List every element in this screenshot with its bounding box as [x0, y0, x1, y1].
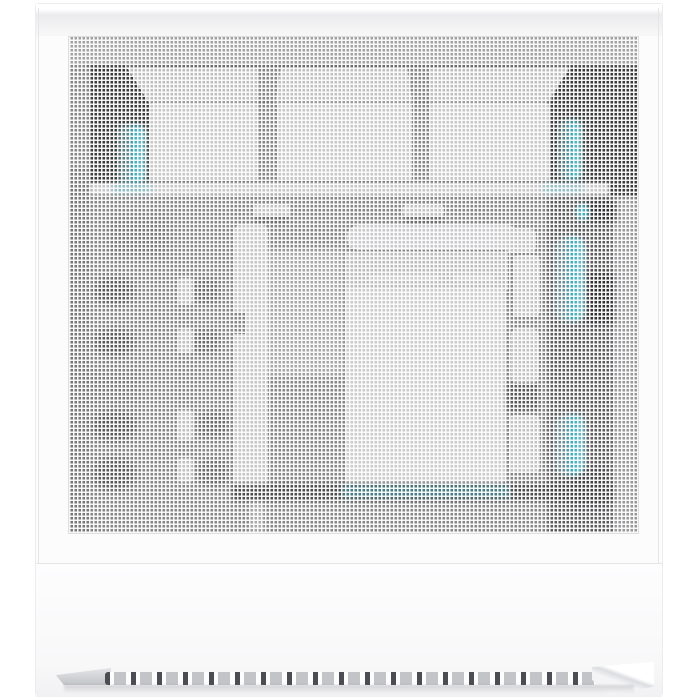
radiator-highlight — [454, 275, 494, 281]
bottom-vent-strip — [105, 672, 597, 685]
right-bracket-gap-shadow — [506, 383, 539, 411]
central-white-block — [345, 289, 506, 483]
right-bracket-tab — [511, 329, 539, 383]
rgb-cable-right-middle — [555, 237, 585, 321]
cable-shadow — [193, 330, 219, 354]
vent-end-cap-left — [56, 667, 111, 685]
fan-bracket-edge — [87, 64, 620, 67]
lower-teal-glow — [342, 485, 510, 498]
cable-shadow — [193, 279, 219, 303]
pc-case — [35, 3, 663, 696]
right-bracket-tab — [509, 415, 540, 473]
cable-shadow — [198, 412, 228, 438]
fan-row-bottom-edge — [128, 179, 569, 182]
bracket-tab — [403, 205, 444, 216]
lower-front-panel — [36, 563, 662, 697]
interior-light-area — [264, 250, 344, 376]
cable-cover-column — [234, 224, 268, 490]
fan-3-frame-top — [430, 69, 569, 105]
fan-mount-rail — [90, 183, 609, 195]
bracket-tab — [253, 205, 290, 216]
cage-clip — [178, 329, 193, 353]
cage-clip — [177, 410, 193, 440]
right-bracket-tab — [513, 255, 540, 317]
radiator-band — [345, 253, 508, 290]
interior-dark-patch — [586, 200, 616, 222]
interior-faint-shadow — [89, 367, 139, 407]
interior-left-edge-shade — [69, 167, 89, 534]
interior-dark-patch — [586, 272, 614, 324]
fan-1-frame-top — [128, 69, 258, 105]
bracket-shadow — [405, 217, 442, 223]
rgb-cable-glow — [113, 184, 151, 193]
drive-cage-shadow — [93, 458, 135, 490]
rgb-cable-top-right — [558, 120, 582, 180]
bracket-shadow — [255, 217, 288, 223]
cable-cover-notch — [234, 312, 246, 334]
rgb-cable-right-lower — [555, 415, 585, 475]
rounded-bar — [347, 225, 519, 250]
mesh-top-light-band — [69, 37, 639, 65]
front-panel-seam-left — [38, 8, 39, 653]
fan-3 — [430, 103, 549, 181]
fan-2-frame-top — [275, 69, 413, 105]
radiator-highlight — [369, 275, 439, 281]
drive-cage-shadow — [92, 411, 136, 441]
cage-clip — [178, 278, 193, 304]
rgb-cable-glow — [543, 184, 583, 193]
right-bracket-tab — [506, 229, 536, 253]
product-photo: White mini-tower PC case, straight-on fr… — [0, 0, 700, 700]
mesh-front-panel — [68, 36, 639, 534]
interior-faint-shadow — [109, 217, 169, 257]
drive-cage-shadow — [94, 278, 134, 304]
rgb-cable-dot — [576, 204, 589, 220]
drive-cage-shadow — [94, 329, 134, 356]
case-top-bezel — [36, 4, 662, 36]
cage-clip — [178, 458, 193, 482]
fan-1 — [150, 103, 258, 181]
bottom-edge-shadow — [64, 685, 634, 693]
interior-right-edge — [614, 199, 639, 534]
rgb-cable-top-left — [118, 125, 146, 183]
fan-2 — [277, 103, 412, 181]
cable-shadow — [198, 460, 228, 486]
lower-white-detail — [250, 502, 264, 532]
